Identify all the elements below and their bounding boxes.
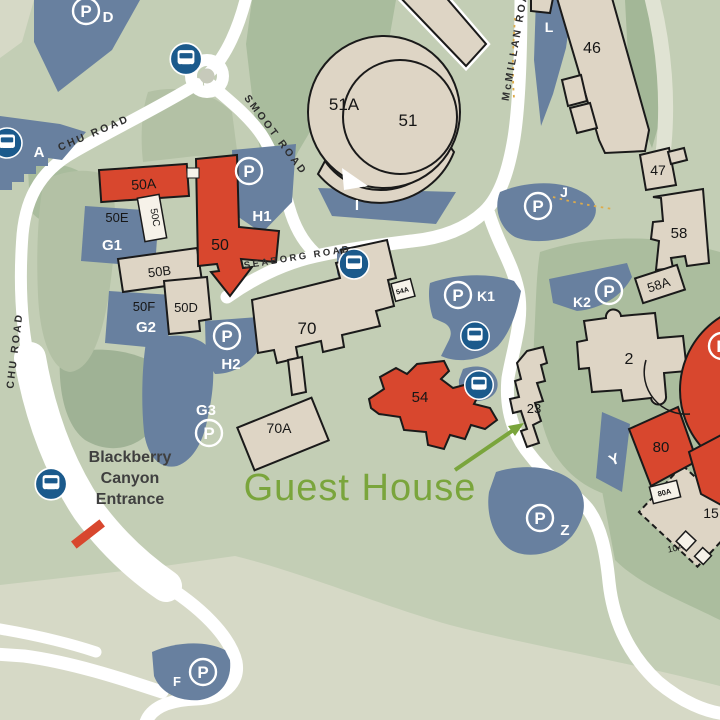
bus-icon [35, 468, 67, 500]
label-50f: 50F [133, 299, 155, 314]
label-lot-h2: H2 [221, 356, 240, 373]
label-lot-h1: H1 [252, 208, 271, 225]
label-50e: 50E [105, 210, 128, 225]
label-2: 2 [625, 351, 634, 368]
label-lot-j: J [560, 184, 568, 200]
bus-icon [170, 43, 202, 75]
label-70: 70 [298, 319, 317, 338]
label-51a: 51A [329, 95, 360, 114]
entrance-label-line2: Canyon [101, 470, 160, 487]
bus-icon [461, 322, 490, 351]
bus-icon [465, 371, 494, 400]
label-lot-f: F [173, 674, 181, 689]
label-lot-d: D [103, 9, 114, 26]
building-top-small [531, 0, 553, 13]
bus-icon [0, 128, 22, 158]
label-54: 54 [412, 389, 429, 406]
label-lot-z: Z [560, 522, 569, 539]
building-70-connector [288, 357, 306, 395]
label-lot-g2: G2 [136, 319, 156, 336]
guest-house-label: Guest House [244, 467, 477, 509]
building-50a-link [187, 168, 199, 178]
label-lot-k1: K1 [477, 288, 495, 304]
label-46: 46 [583, 40, 601, 57]
building-47-tab [668, 148, 687, 164]
roundabout-island [200, 69, 215, 84]
label-58: 58 [671, 225, 688, 242]
label-80: 80 [653, 439, 670, 456]
label-50a: 50A [131, 175, 158, 193]
label-lot-i: I [355, 197, 359, 214]
entrance-label-line3: Entrance [96, 491, 165, 508]
campus-map: P [0, 0, 720, 720]
label-50d: 50D [174, 300, 198, 315]
label-50: 50 [211, 237, 229, 254]
label-15: 15 [703, 505, 719, 521]
label-lot-g3: G3 [196, 402, 216, 419]
label-23: 23 [527, 401, 541, 416]
label-lot-a: A [34, 144, 45, 161]
label-lot-k2: K2 [573, 294, 591, 310]
label-lot-g1: G1 [102, 237, 122, 254]
label-50b: 50B [147, 263, 172, 281]
label-47: 47 [650, 162, 666, 178]
label-lot-l: L [545, 19, 554, 35]
entrance-label-line1: Blackberry [89, 449, 172, 466]
label-70a: 70A [267, 420, 293, 436]
label-51: 51 [399, 111, 418, 130]
